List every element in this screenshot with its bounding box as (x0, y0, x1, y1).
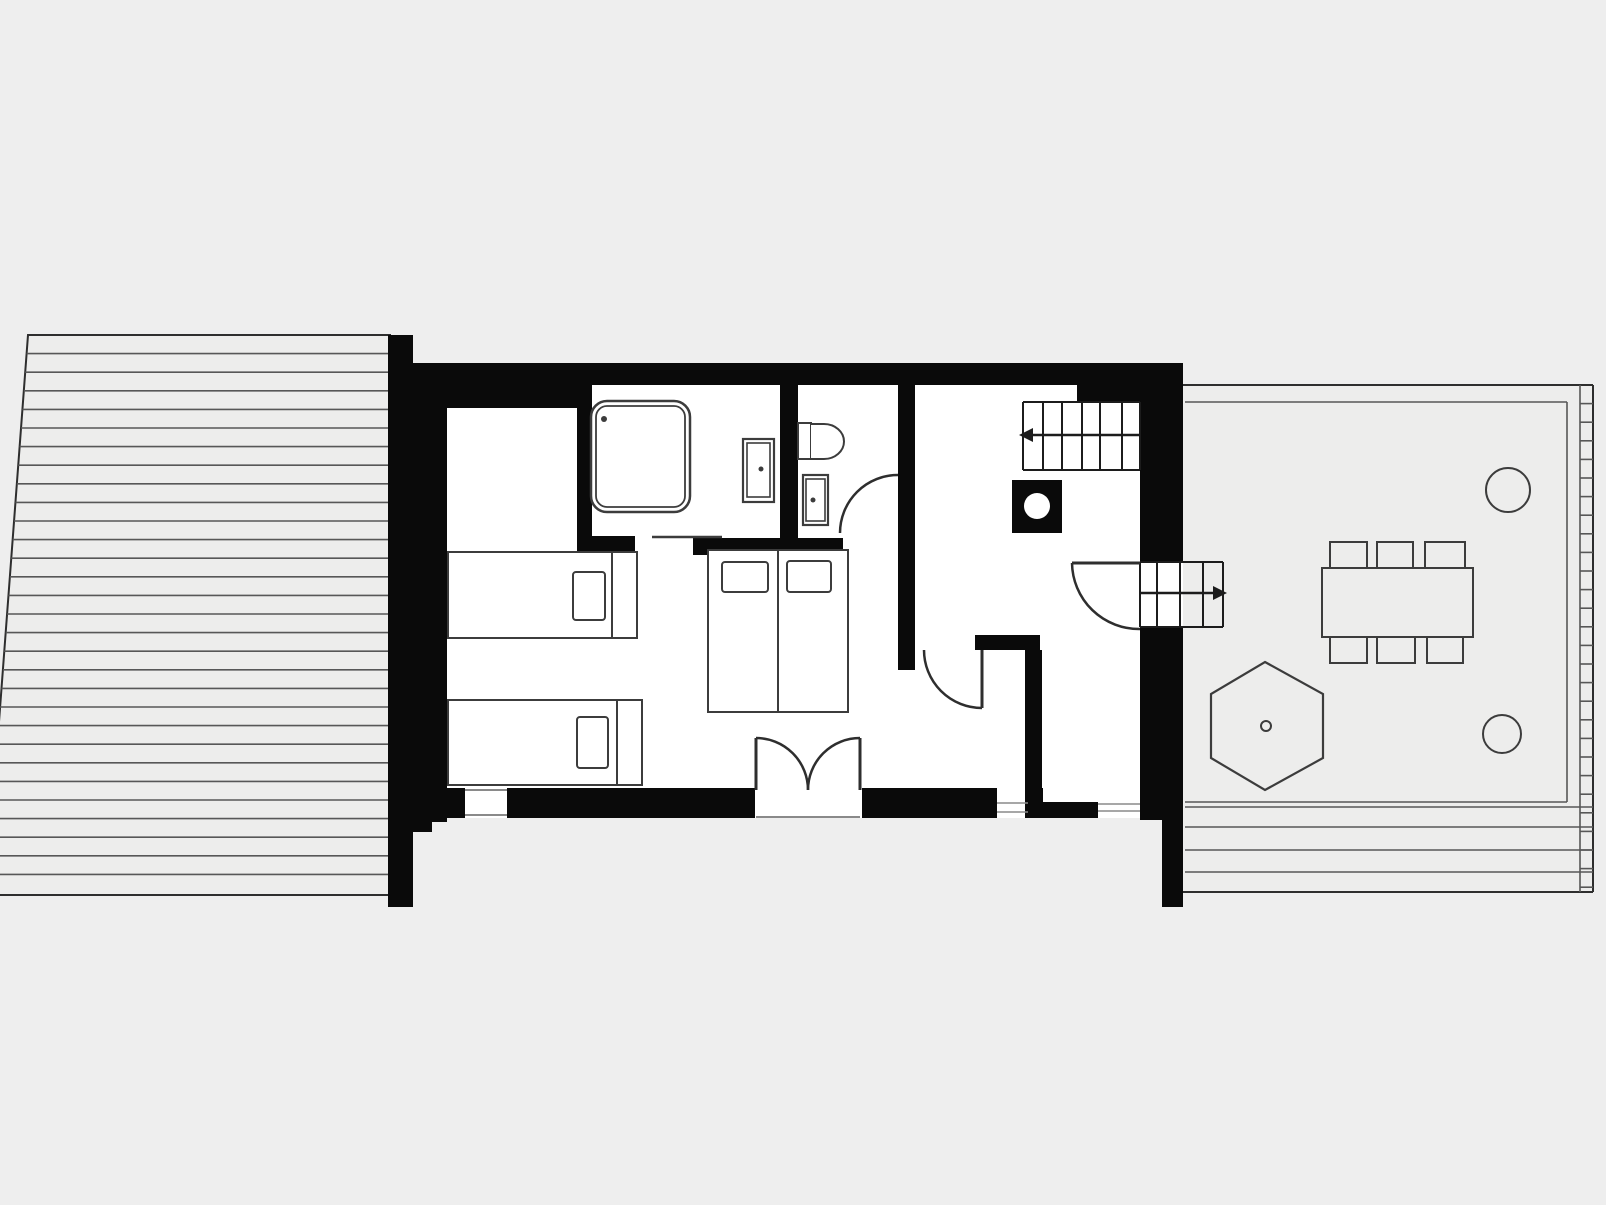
chair-top-1 (1330, 542, 1367, 568)
right-wall-upper (1140, 363, 1183, 562)
double-bed-pillow-right (787, 561, 831, 592)
right-wall-foot (1162, 820, 1183, 907)
floor-plan-svg (0, 0, 1606, 1205)
bath-divider-wall (780, 383, 798, 540)
top-step-wall (1077, 363, 1140, 402)
top-wall (413, 363, 1083, 385)
single-bed-1-pillow (573, 572, 605, 620)
chair-bottom-1 (1330, 637, 1367, 663)
dining-table (1322, 568, 1473, 637)
bath-wall-foot (577, 536, 635, 553)
shower-drain-dot (601, 416, 607, 422)
bottom-wall-d (1028, 788, 1043, 818)
floor-plan-page (0, 0, 1606, 1205)
sink-1-faucet-dot (759, 467, 764, 472)
chair-bottom-2 (1377, 637, 1415, 663)
toilet-cistern (798, 423, 811, 459)
hall-wall (898, 383, 915, 670)
left-deck (0, 335, 390, 895)
bottom-wall-a (413, 788, 465, 818)
top-left-wall-block (413, 383, 577, 408)
single-bed-1-frame (448, 552, 637, 638)
stove-flue-circle (1024, 493, 1050, 519)
bottom-wall-c (862, 788, 997, 818)
bottom-left-foot (413, 818, 432, 832)
double-bed-pillow-left (722, 562, 768, 592)
toilet-bowl (811, 424, 844, 459)
single-bed-2-pillow (577, 717, 608, 768)
chair-top-2 (1377, 542, 1413, 568)
round-feature-top (1486, 468, 1530, 512)
single-bed-2-frame (448, 700, 642, 785)
deck-junction-strip (388, 335, 413, 907)
round-feature-bottom (1483, 715, 1521, 753)
closet-top-wall (975, 635, 1040, 650)
chair-bottom-3 (1427, 637, 1463, 663)
bottom-wall-b (507, 788, 755, 818)
right-wall-lower (1140, 627, 1183, 820)
chair-top-3 (1425, 542, 1465, 568)
sink-2-faucet-dot (811, 498, 816, 503)
bottom-half-wall (1043, 802, 1098, 818)
left-wall (413, 363, 447, 822)
